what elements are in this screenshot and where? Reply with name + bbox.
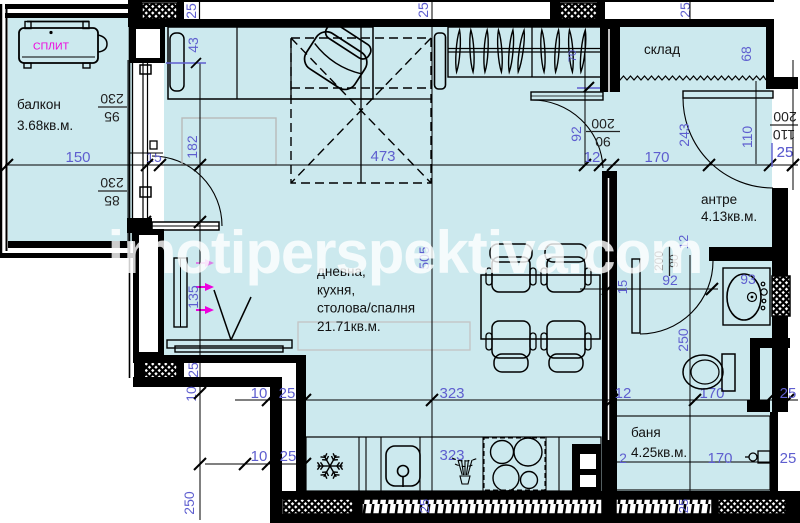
svg-text:92: 92 [568, 126, 584, 142]
svg-text:170: 170 [644, 149, 669, 166]
svg-text:imotiperspektiva.com: imotiperspektiva.com [108, 219, 703, 286]
svg-text:склад: склад [644, 42, 680, 57]
svg-text:10: 10 [183, 386, 199, 402]
svg-text:250: 250 [181, 491, 197, 515]
svg-text:25: 25 [415, 2, 431, 18]
svg-text:170: 170 [707, 450, 732, 467]
svg-text:4.25кв.м.: 4.25кв.м. [631, 445, 687, 460]
svg-text:25: 25 [780, 450, 797, 467]
svg-text:25: 25 [185, 362, 201, 378]
svg-text:12: 12 [584, 149, 601, 166]
svg-text:25: 25 [280, 448, 297, 465]
svg-text:2: 2 [619, 450, 627, 466]
svg-text:323: 323 [439, 385, 464, 402]
svg-text:баня: баня [631, 425, 661, 440]
svg-text:3.68кв.м.: 3.68кв.м. [17, 118, 73, 133]
svg-text:25: 25 [777, 144, 794, 161]
svg-text:150: 150 [65, 149, 90, 166]
svg-text:68: 68 [738, 46, 754, 62]
svg-text:25: 25 [676, 499, 691, 513]
svg-text:СПЛИТ: СПЛИТ [33, 41, 70, 53]
svg-text:110: 110 [739, 126, 755, 149]
svg-text:10: 10 [251, 448, 268, 465]
svg-text:балкон: балкон [17, 97, 61, 112]
svg-text:25: 25 [279, 385, 296, 402]
svg-text:25: 25 [183, 3, 199, 19]
svg-text:25: 25 [417, 499, 432, 513]
svg-text:21.71кв.м.: 21.71кв.м. [317, 319, 381, 334]
svg-text:182: 182 [184, 135, 200, 159]
svg-text:12: 12 [615, 385, 632, 402]
svg-text:250: 250 [675, 328, 691, 352]
svg-text:25: 25 [780, 385, 797, 402]
svg-text:473: 473 [370, 148, 395, 165]
svg-text:243: 243 [676, 123, 692, 147]
svg-text:90: 90 [595, 134, 611, 150]
svg-text:323: 323 [439, 447, 464, 464]
svg-text:93: 93 [740, 271, 756, 287]
svg-text:25: 25 [677, 2, 693, 18]
svg-text:70: 70 [567, 50, 579, 62]
svg-text:110: 110 [773, 127, 796, 143]
svg-text:135: 135 [185, 285, 201, 309]
svg-text:43: 43 [185, 37, 201, 53]
svg-text:200: 200 [591, 116, 615, 132]
svg-text:95: 95 [104, 109, 120, 125]
svg-text:столова/спалня: столова/спалня [317, 301, 415, 316]
svg-text:230: 230 [100, 91, 124, 107]
svg-text:230: 230 [100, 175, 124, 191]
svg-text:4.13кв.м.: 4.13кв.м. [701, 209, 757, 224]
svg-text:85: 85 [104, 193, 120, 209]
svg-text:антре: антре [701, 192, 737, 207]
svg-text:10: 10 [251, 385, 268, 402]
